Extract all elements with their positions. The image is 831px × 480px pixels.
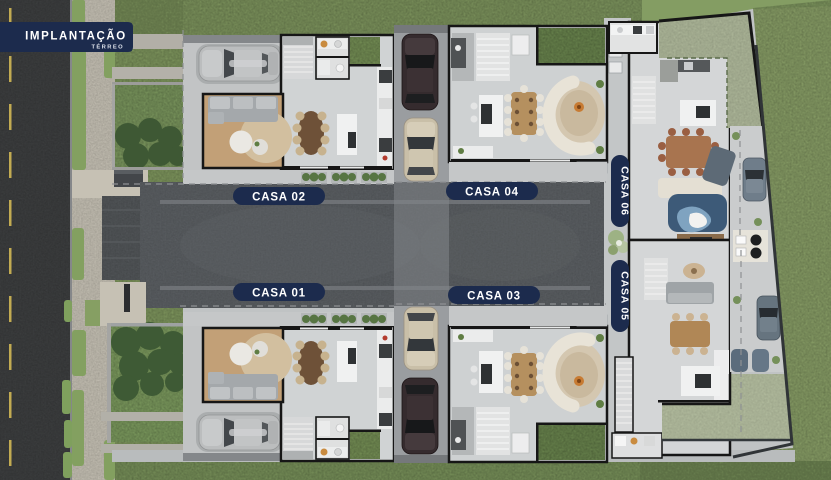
svg-text:IMPLANTAÇÃO: IMPLANTAÇÃO bbox=[25, 30, 127, 43]
svg-text:CASA 03: CASA 03 bbox=[467, 291, 521, 303]
svg-text:CASA 06: CASA 06 bbox=[619, 166, 631, 216]
svg-text:CASA 02: CASA 02 bbox=[252, 192, 306, 204]
svg-text:CASA 04: CASA 04 bbox=[465, 187, 519, 199]
svg-text:CASA 05: CASA 05 bbox=[619, 271, 631, 321]
svg-text:CASA 01: CASA 01 bbox=[252, 288, 306, 300]
svg-text:TÉRREO: TÉRREO bbox=[91, 43, 124, 51]
